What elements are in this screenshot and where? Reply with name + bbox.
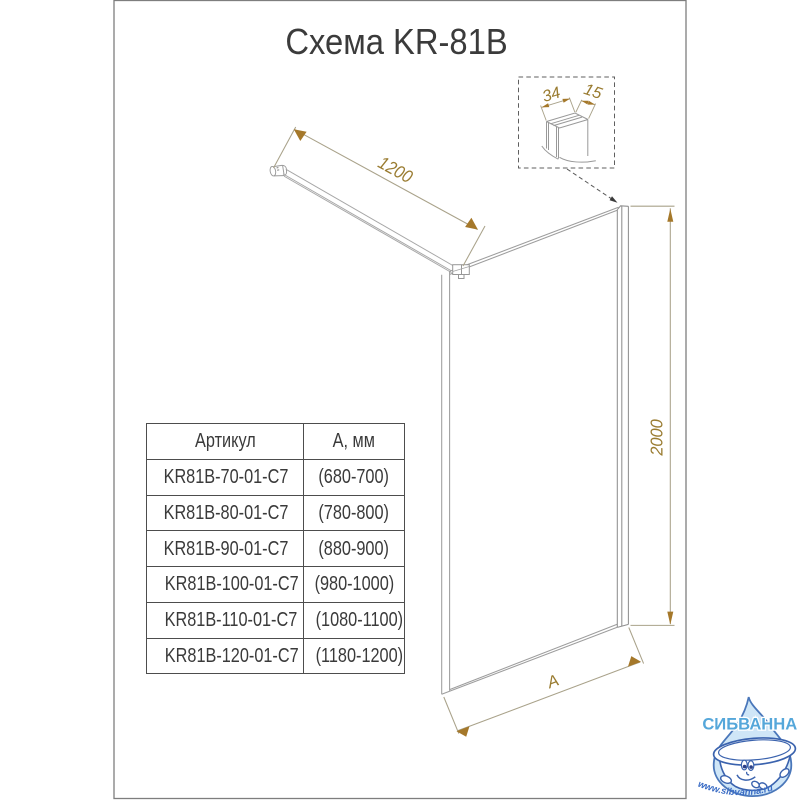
svg-text:СИБВАННА: СИБВАННА [702, 714, 797, 733]
